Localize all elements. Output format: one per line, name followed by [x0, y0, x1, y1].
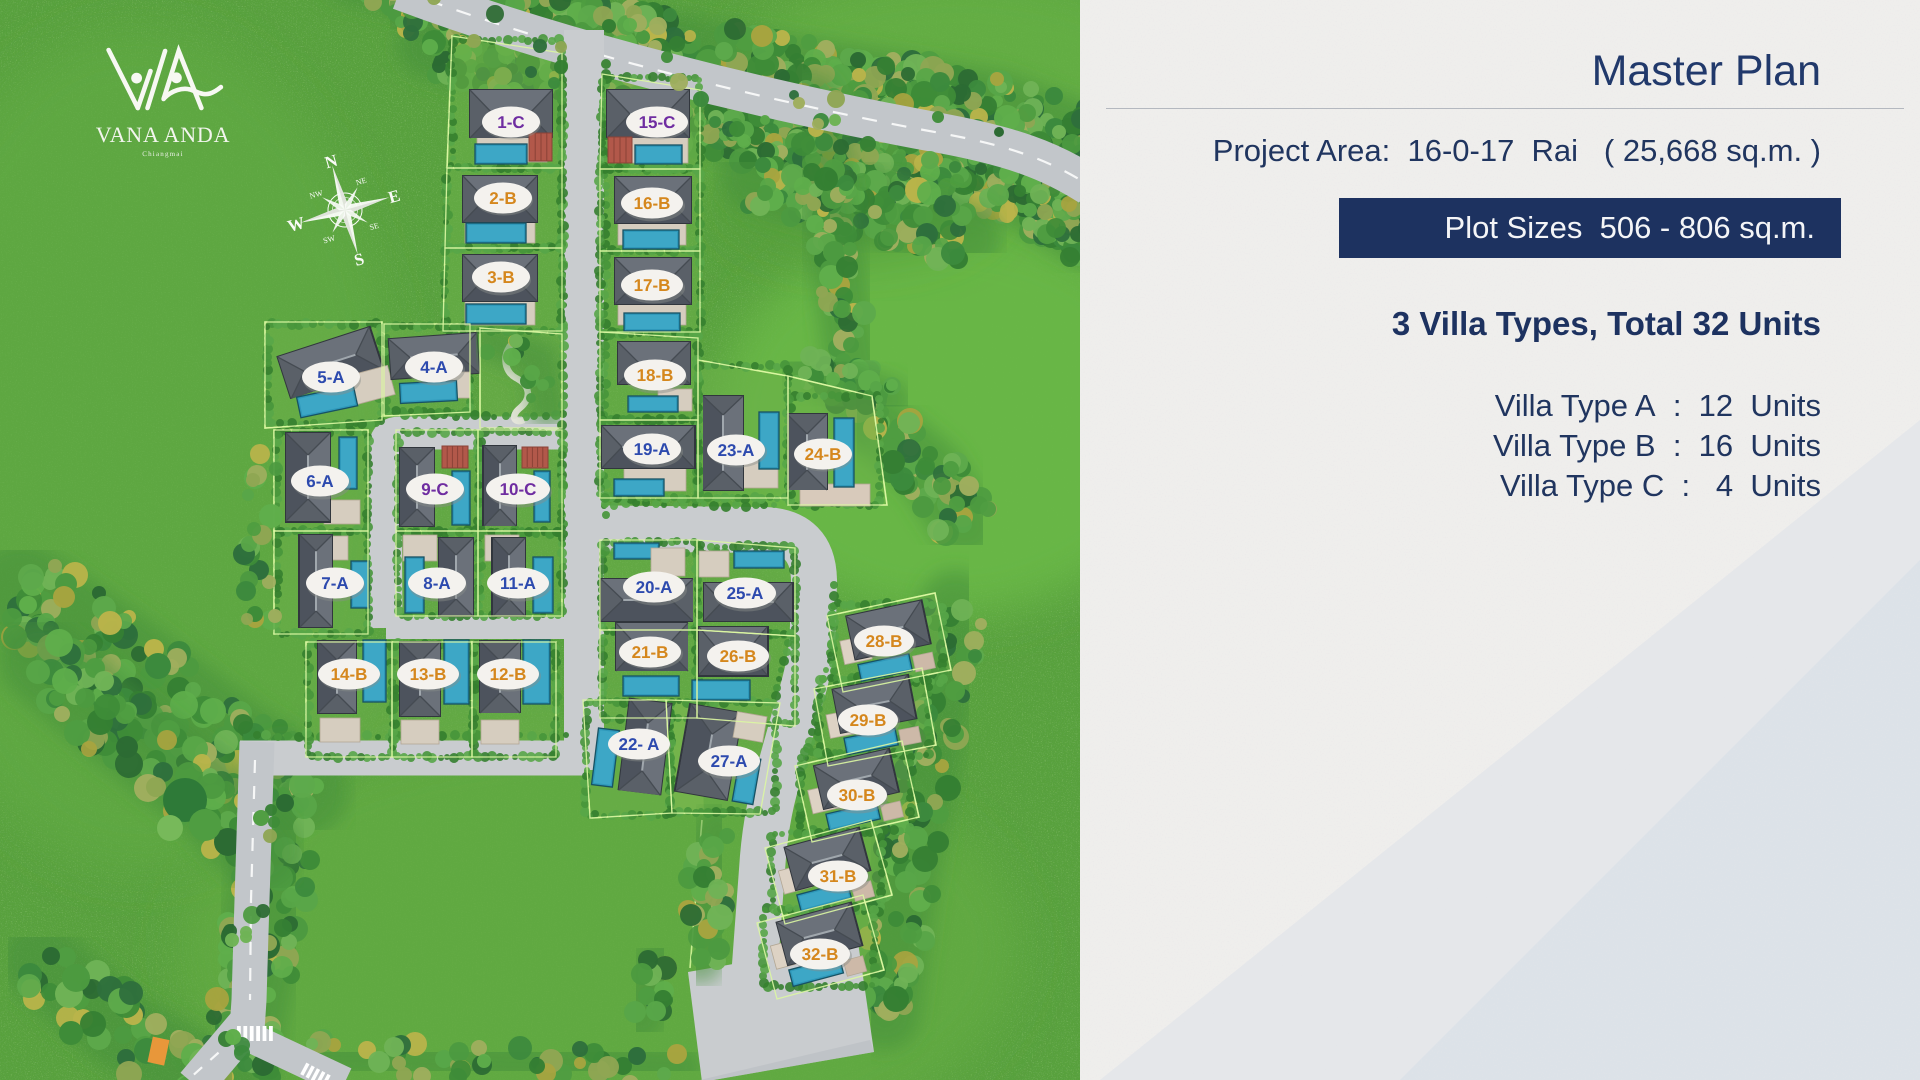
- svg-text:6-A: 6-A: [306, 472, 333, 491]
- svg-text:8-A: 8-A: [423, 574, 450, 593]
- svg-text:30-B: 30-B: [839, 786, 876, 805]
- svg-text:28-B: 28-B: [866, 632, 903, 651]
- svg-text:9-C: 9-C: [421, 480, 448, 499]
- svg-text:23-A: 23-A: [718, 441, 755, 460]
- svg-text:19-A: 19-A: [634, 440, 671, 459]
- svg-text:4-A: 4-A: [420, 358, 447, 377]
- svg-text:20-A: 20-A: [636, 578, 673, 597]
- svg-text:27-A: 27-A: [711, 752, 748, 771]
- svg-text:13-B: 13-B: [410, 665, 447, 684]
- svg-text:16-B: 16-B: [634, 194, 671, 213]
- svg-text:22- A: 22- A: [619, 735, 660, 754]
- svg-text:Chiangmai: Chiangmai: [142, 150, 184, 158]
- svg-text:10-C: 10-C: [500, 480, 537, 499]
- svg-text:25-A: 25-A: [727, 584, 764, 603]
- svg-text:29-B: 29-B: [850, 711, 887, 730]
- svg-text:32-B: 32-B: [802, 945, 839, 964]
- svg-text:11-A: 11-A: [500, 574, 536, 593]
- svg-text:14-B: 14-B: [331, 665, 368, 684]
- svg-text:2-B: 2-B: [489, 189, 516, 208]
- svg-text:26-B: 26-B: [720, 647, 757, 666]
- svg-text:18-B: 18-B: [637, 366, 674, 385]
- svg-text:7-A: 7-A: [321, 574, 348, 593]
- svg-text:VANA ANDA: VANA ANDA: [96, 122, 231, 147]
- svg-text:17-B: 17-B: [634, 276, 671, 295]
- svg-text:5-A: 5-A: [317, 368, 344, 387]
- svg-text:31-B: 31-B: [820, 867, 857, 886]
- svg-text:3-B: 3-B: [487, 268, 514, 287]
- svg-text:15-C: 15-C: [639, 113, 676, 132]
- svg-text:24-B: 24-B: [805, 445, 842, 464]
- svg-text:21-B: 21-B: [632, 643, 669, 662]
- svg-text:12-B: 12-B: [490, 665, 527, 684]
- svg-text:1-C: 1-C: [497, 113, 524, 132]
